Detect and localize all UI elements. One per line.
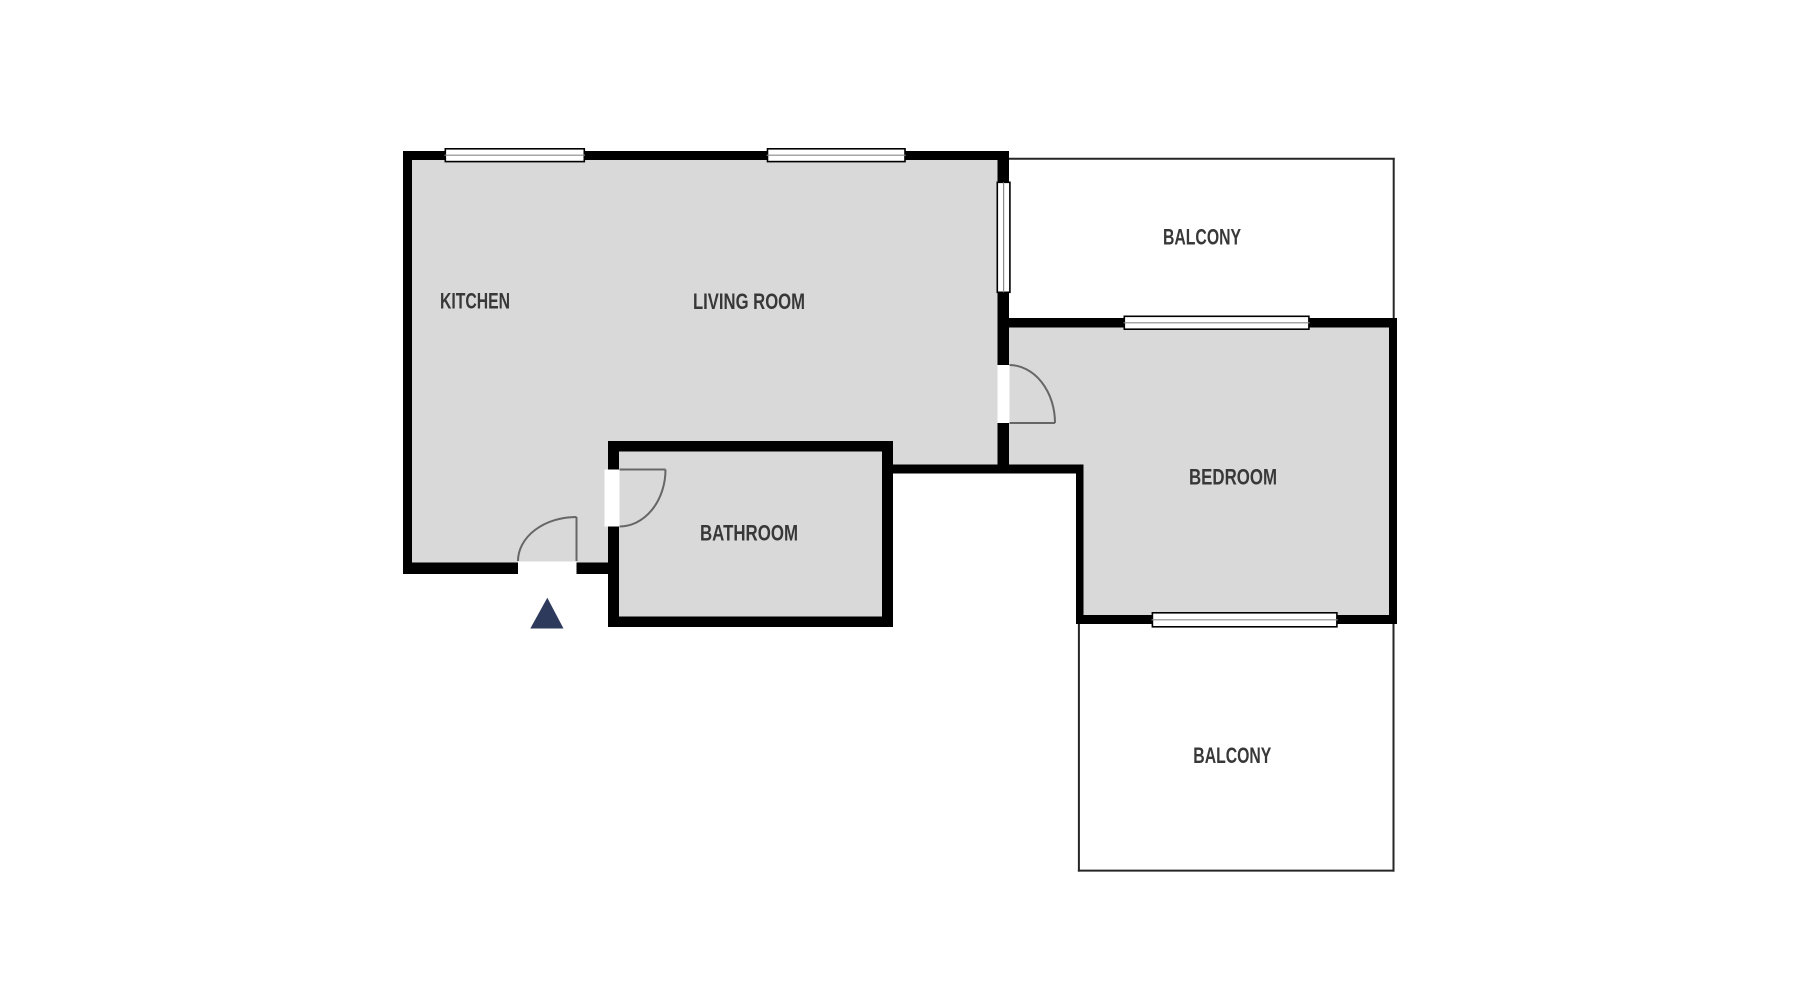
svg-text:KITCHEN: KITCHEN — [440, 289, 510, 314]
svg-text:BALCONY: BALCONY — [1163, 225, 1241, 250]
svg-text:BEDROOM: BEDROOM — [1189, 465, 1277, 490]
svg-text:BALCONY: BALCONY — [1193, 743, 1271, 768]
svg-text:LIVING ROOM: LIVING ROOM — [693, 289, 805, 314]
svg-text:BATHROOM: BATHROOM — [700, 521, 798, 546]
